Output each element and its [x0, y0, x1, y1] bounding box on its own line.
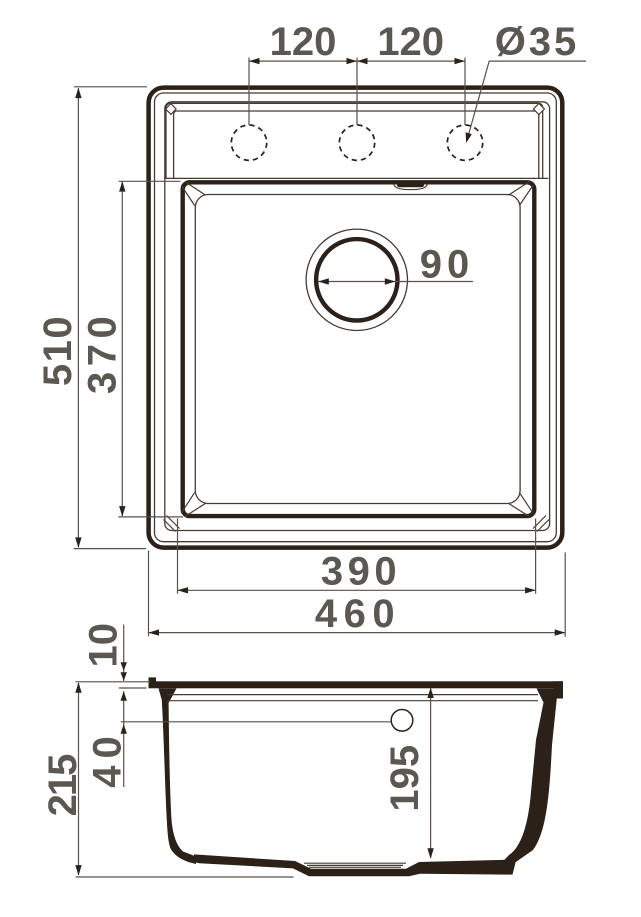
svg-text:40: 40	[86, 729, 130, 788]
svg-text:Ø35: Ø35	[495, 20, 580, 64]
svg-text:510: 510	[36, 315, 80, 386]
svg-text:390: 390	[321, 549, 401, 593]
svg-text:10: 10	[82, 623, 126, 668]
svg-text:195: 195	[383, 745, 427, 812]
svg-text:120: 120	[270, 20, 337, 64]
svg-text:370: 370	[81, 311, 125, 394]
svg-text:215: 215	[41, 754, 85, 816]
svg-text:120: 120	[377, 20, 444, 64]
svg-text:460: 460	[315, 592, 401, 636]
svg-text:90: 90	[420, 243, 475, 287]
